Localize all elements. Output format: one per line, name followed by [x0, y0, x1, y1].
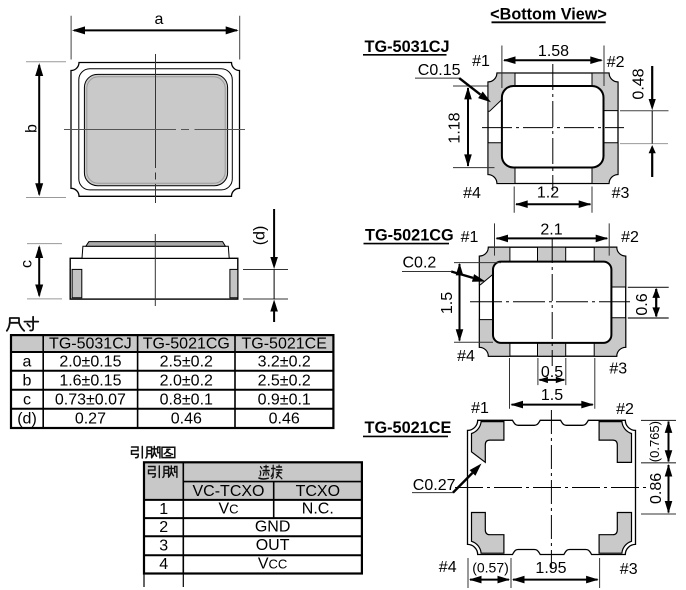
svg-text:#4: #4: [463, 185, 481, 202]
svg-text:(d): (d): [252, 226, 269, 246]
svg-text:0.46: 0.46: [171, 411, 202, 428]
svg-text:#2: #2: [621, 229, 639, 246]
svg-text:VC-TCXO: VC-TCXO: [193, 483, 265, 500]
svg-text:1.58: 1.58: [538, 43, 569, 60]
svg-text:#1: #1: [461, 229, 479, 246]
svg-text:#2: #2: [616, 401, 634, 418]
svg-text:1.6±0.15: 1.6±0.15: [59, 373, 121, 390]
svg-text:0.5: 0.5: [541, 364, 563, 381]
svg-text:(0.765): (0.765): [647, 421, 662, 462]
svg-text:#3: #3: [609, 361, 627, 378]
svg-text:C0.2: C0.2: [403, 255, 437, 272]
svg-text:4: 4: [159, 556, 168, 573]
svg-text:2.5±0.2: 2.5±0.2: [258, 373, 311, 390]
svg-text:#1: #1: [471, 400, 489, 417]
svg-text:TG-5021CG: TG-5021CG: [143, 336, 230, 353]
svg-text:0.27: 0.27: [75, 411, 106, 428]
svg-text:0.86: 0.86: [648, 473, 665, 504]
svg-text:2.0±0.15: 2.0±0.15: [59, 354, 121, 371]
svg-text:C0.27: C0.27: [413, 477, 456, 494]
svg-text:0.9±0.1: 0.9±0.1: [258, 392, 311, 409]
svg-text:0.6: 0.6: [634, 293, 651, 315]
svg-text:(d): (d): [17, 411, 37, 428]
svg-text:2.0±0.2: 2.0±0.2: [160, 373, 213, 390]
svg-text:TG-5021CE: TG-5021CE: [365, 419, 452, 437]
svg-text:<Bottom View>: <Bottom View>: [490, 6, 607, 24]
svg-text:TCXO: TCXO: [296, 483, 340, 500]
svg-text:1.95: 1.95: [535, 560, 566, 577]
svg-text:3: 3: [159, 537, 168, 554]
svg-text:TG-5021CE: TG-5021CE: [242, 336, 327, 353]
svg-text:2.1: 2.1: [540, 222, 562, 239]
svg-text:0.73±0.07: 0.73±0.07: [55, 392, 126, 409]
svg-text:TG-5021CG: TG-5021CG: [365, 227, 454, 245]
svg-text:GND: GND: [255, 519, 291, 536]
svg-text:#3: #3: [612, 185, 630, 202]
svg-text:0.8±0.1: 0.8±0.1: [160, 392, 213, 409]
svg-text:0.46: 0.46: [269, 411, 300, 428]
svg-text:2.5±0.2: 2.5±0.2: [160, 354, 213, 371]
svg-text:a: a: [155, 11, 164, 28]
svg-text:#4: #4: [439, 559, 457, 576]
svg-text:#1: #1: [472, 53, 490, 70]
svg-text:1: 1: [159, 501, 168, 518]
svg-text:1.2: 1.2: [537, 185, 559, 202]
svg-text:#2: #2: [607, 54, 625, 71]
svg-text:TG-5031CJ: TG-5031CJ: [49, 336, 132, 353]
svg-text:3.2±0.2: 3.2±0.2: [258, 354, 311, 371]
svg-text:#4: #4: [457, 348, 475, 365]
svg-text:b: b: [23, 373, 32, 390]
svg-text:VC: VC: [218, 501, 238, 518]
svg-text:b: b: [24, 124, 41, 133]
svg-text:TG-5031CJ: TG-5031CJ: [365, 38, 450, 56]
svg-text:VCC: VCC: [258, 555, 287, 572]
svg-text:0.48: 0.48: [631, 68, 648, 99]
svg-text:(0.57): (0.57): [472, 559, 509, 575]
svg-text:OUT: OUT: [256, 537, 290, 554]
svg-text:1.5: 1.5: [541, 387, 563, 404]
svg-text:C0.15: C0.15: [418, 62, 461, 79]
svg-text:1.18: 1.18: [447, 112, 464, 143]
svg-text:N.C.: N.C.: [302, 501, 334, 518]
svg-text:#3: #3: [620, 561, 638, 578]
svg-text:c: c: [23, 392, 31, 409]
svg-text:2: 2: [159, 519, 168, 536]
svg-text:1.5: 1.5: [439, 292, 456, 314]
svg-text:a: a: [23, 354, 32, 371]
svg-text:c: c: [19, 260, 36, 268]
